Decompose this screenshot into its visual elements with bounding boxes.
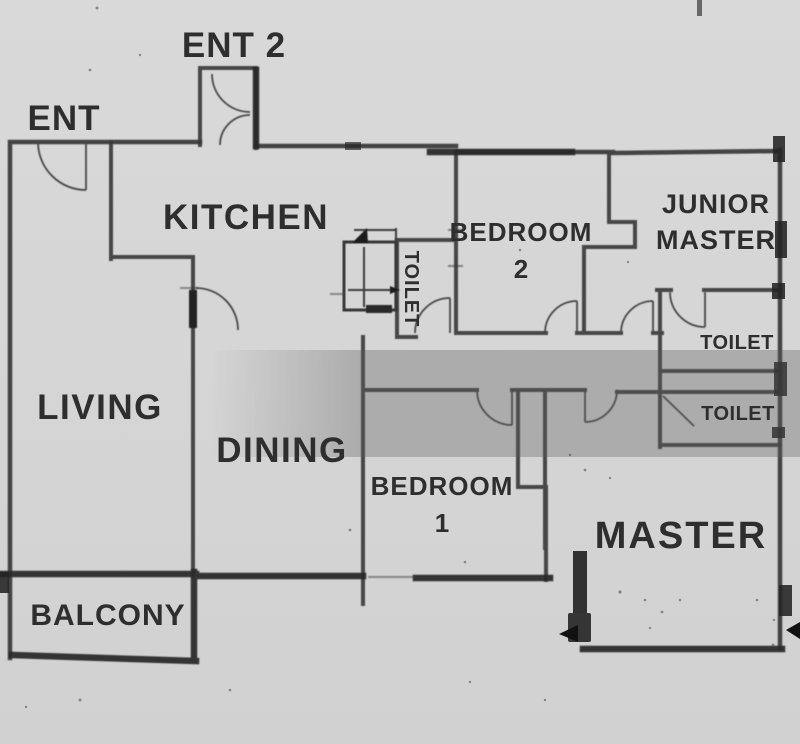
window-block-master-right — [779, 585, 792, 616]
room-label-bedroom1-line2: 1 — [435, 508, 449, 538]
room-label-toilet-lower-right: TOILET — [701, 403, 775, 425]
window-block-jm-right — [775, 221, 787, 258]
room-label-balcony: BALCONY — [30, 599, 185, 632]
counter-bar — [366, 305, 392, 313]
room-label-junior-master-line2: MASTER — [656, 225, 776, 255]
room-label-bedroom2-line2: 2 — [514, 254, 528, 284]
room-label-bedroom2-line1: BEDROOM — [450, 217, 593, 247]
room-label-junior-master-line1: JUNIOR — [662, 189, 770, 219]
master-door-jamb — [573, 551, 587, 613]
room-label-ent2: ENT 2 — [182, 26, 286, 65]
room-label-dining: DINING — [216, 431, 348, 470]
room-label-master: MASTER — [595, 515, 767, 557]
left-edge-block — [0, 572, 9, 593]
window-block-jm-top — [773, 136, 785, 162]
top-edge-tick — [697, 0, 702, 16]
room-label-bedroom1-line1: BEDROOM — [371, 471, 514, 501]
room-label-kitchen: KITCHEN — [163, 198, 329, 237]
window-block-toilet1 — [772, 283, 785, 299]
floorplan-svg: ENT ENT 2 KITCHEN LIVING DINING BALCONY … — [0, 0, 800, 744]
room-label-living: LIVING — [37, 388, 163, 427]
floorplan-canvas: ENT ENT 2 KITCHEN LIVING DINING BALCONY … — [0, 0, 800, 744]
room-label-ent: ENT — [28, 99, 101, 138]
room-label-toilet-mid: TOILET — [400, 251, 422, 328]
room-label-toilet-upper-right: TOILET — [700, 332, 774, 354]
top-wall-joint — [345, 142, 361, 150]
